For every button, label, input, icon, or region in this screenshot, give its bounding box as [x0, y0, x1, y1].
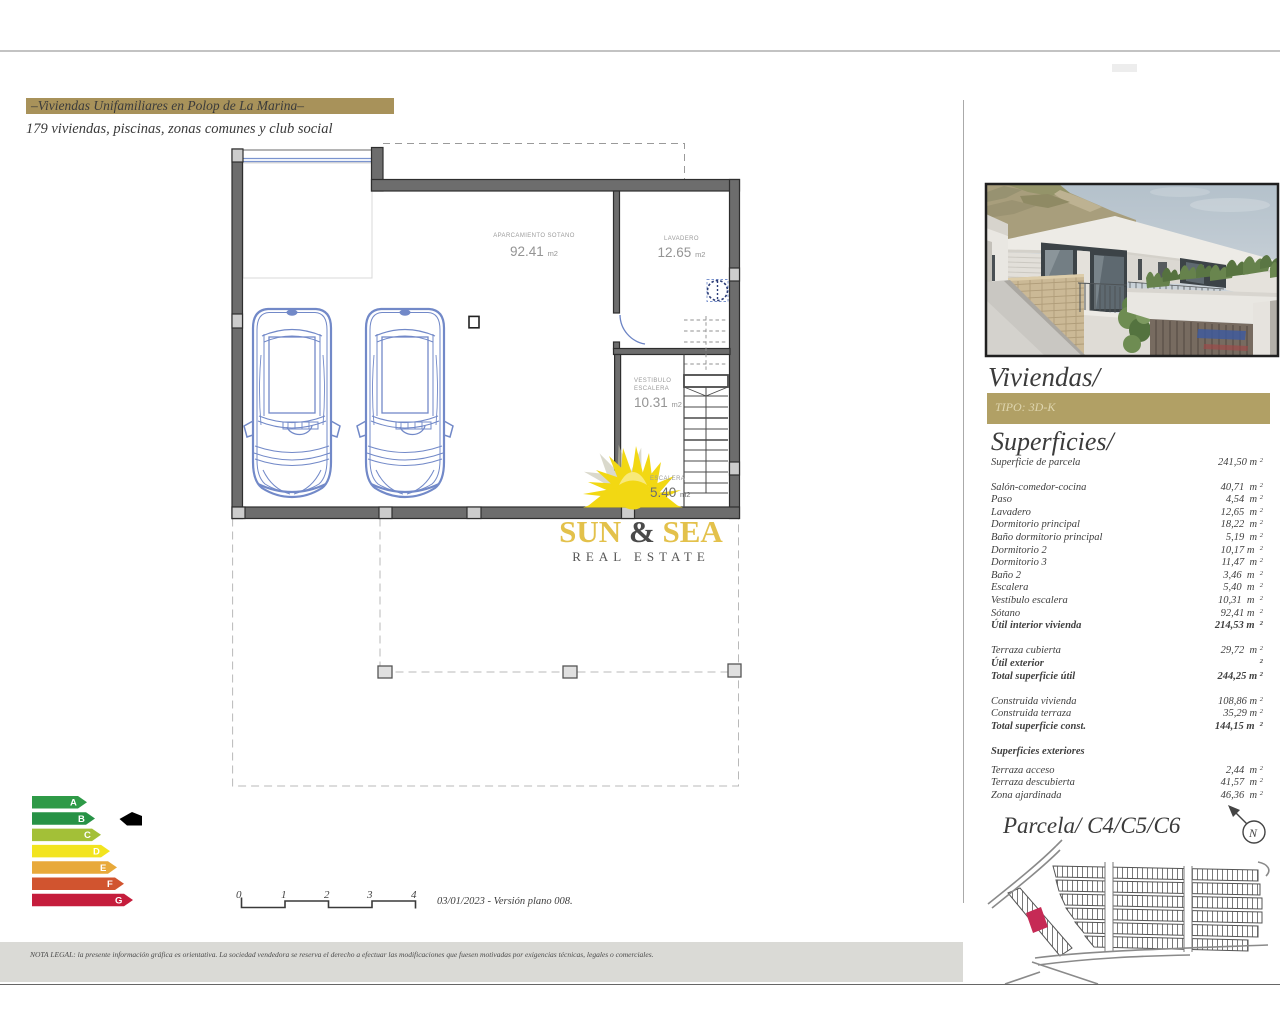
- svg-text:B: B: [78, 814, 85, 825]
- svg-text:N: N: [1248, 826, 1258, 840]
- svg-text:A: A: [70, 798, 77, 809]
- svg-text:F: F: [107, 879, 113, 890]
- svg-text:E: E: [100, 863, 106, 874]
- svg-text:C: C: [84, 830, 91, 841]
- svg-text:G: G: [115, 895, 122, 906]
- svg-text:D: D: [93, 847, 100, 858]
